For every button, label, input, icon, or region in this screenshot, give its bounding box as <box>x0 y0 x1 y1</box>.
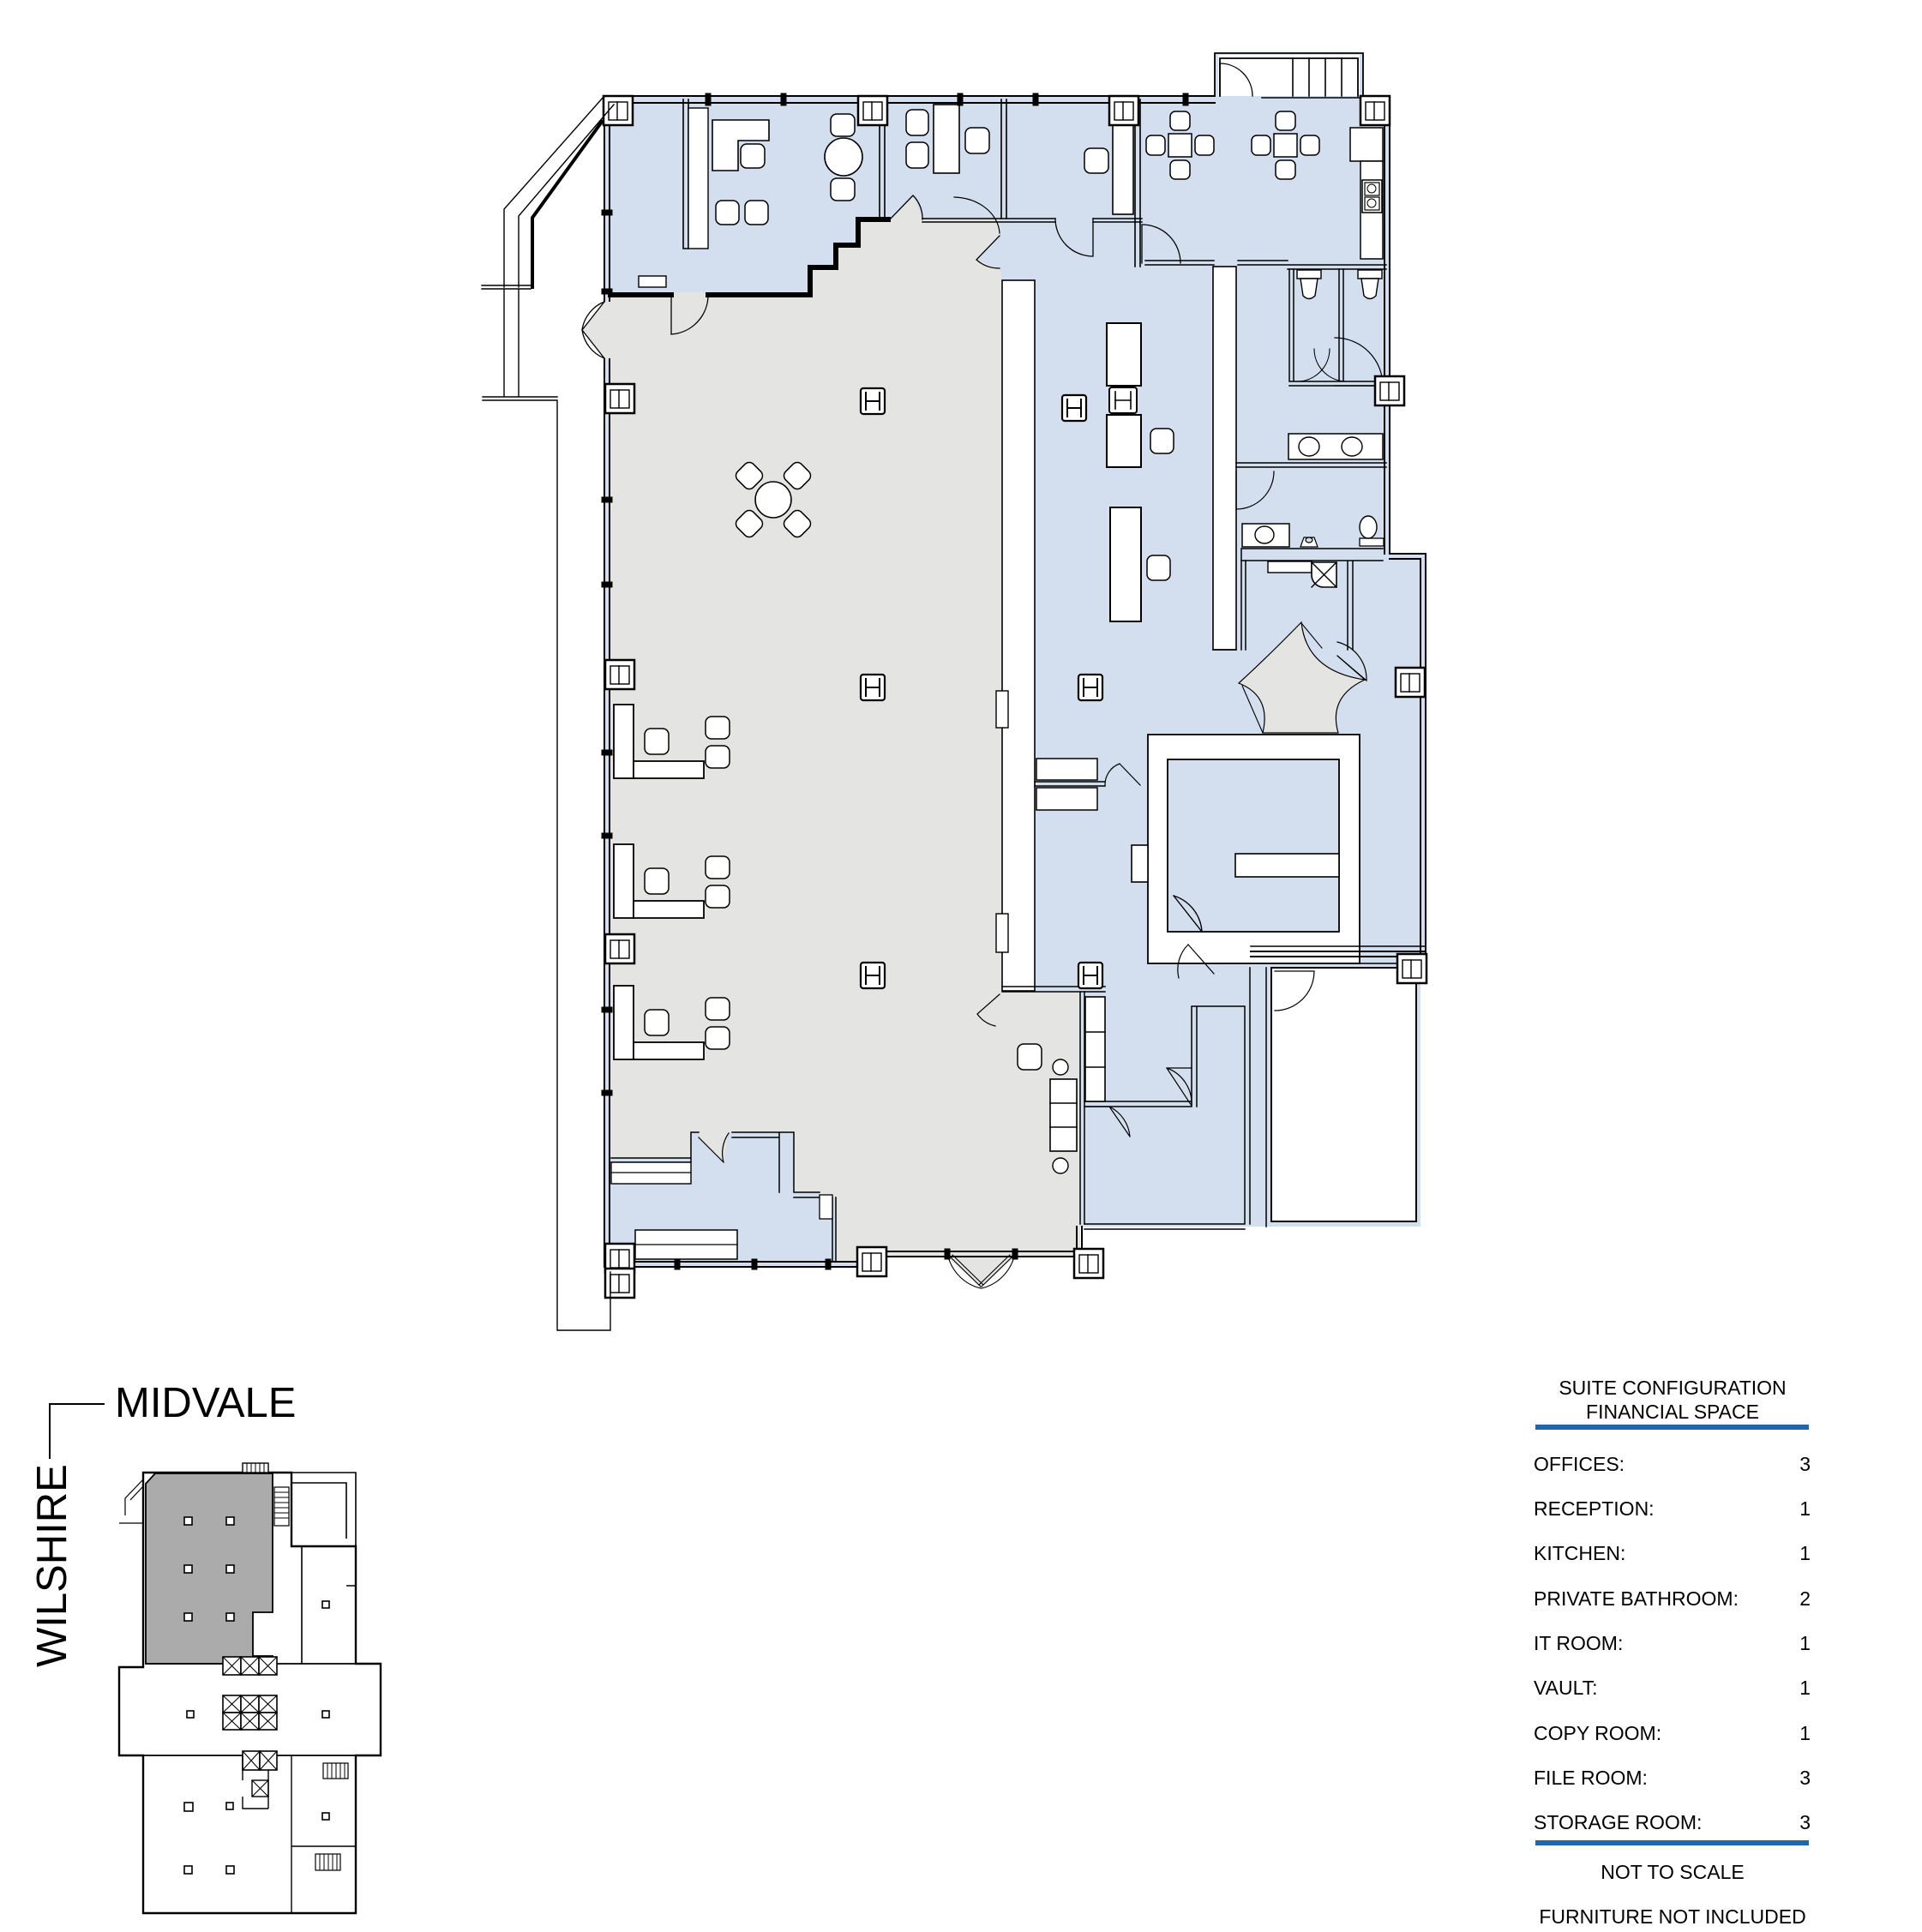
svg-text:3: 3 <box>1799 1811 1811 1833</box>
svg-text:COPY ROOM:: COPY ROOM: <box>1534 1722 1661 1744</box>
svg-text:3: 3 <box>1799 1453 1811 1475</box>
svg-text:NOT TO SCALE: NOT TO SCALE <box>1601 1861 1744 1883</box>
svg-text:1: 1 <box>1799 1677 1811 1699</box>
svg-text:STORAGE ROOM:: STORAGE ROOM: <box>1534 1811 1702 1833</box>
svg-text:SUITE CONFIGURATION: SUITE CONFIGURATION <box>1559 1377 1786 1399</box>
svg-text:VAULT:: VAULT: <box>1534 1677 1598 1699</box>
svg-text:OFFICES:: OFFICES: <box>1534 1453 1625 1475</box>
svg-text:RECEPTION:: RECEPTION: <box>1534 1497 1655 1520</box>
svg-text:MIDVALE: MIDVALE <box>115 1380 296 1426</box>
svg-text:FURNITURE NOT INCLUDED: FURNITURE NOT INCLUDED <box>1539 1905 1805 1928</box>
svg-text:IT ROOM:: IT ROOM: <box>1534 1632 1623 1654</box>
svg-text:1: 1 <box>1799 1632 1811 1654</box>
svg-text:2: 2 <box>1799 1587 1811 1610</box>
svg-text:KITCHEN:: KITCHEN: <box>1534 1542 1625 1564</box>
svg-text:1: 1 <box>1799 1542 1811 1564</box>
svg-text:3: 3 <box>1799 1767 1811 1789</box>
svg-text:FILE ROOM:: FILE ROOM: <box>1534 1767 1648 1789</box>
svg-text:FINANCIAL SPACE: FINANCIAL SPACE <box>1586 1401 1759 1423</box>
svg-text:WILSHIRE: WILSHIRE <box>29 1464 75 1667</box>
svg-text:1: 1 <box>1799 1722 1811 1744</box>
svg-text:1: 1 <box>1799 1497 1811 1520</box>
svg-text:PRIVATE BATHROOM:: PRIVATE BATHROOM: <box>1534 1587 1739 1610</box>
